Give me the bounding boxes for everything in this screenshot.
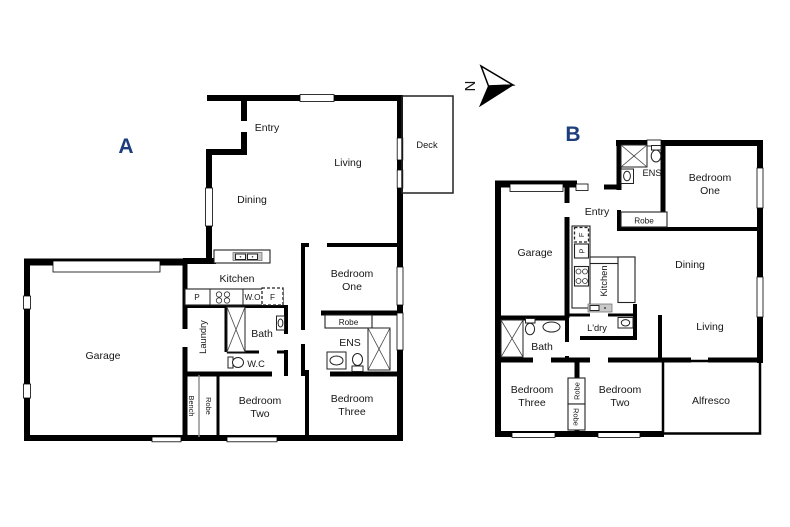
label-pantry-b: P: [577, 248, 586, 253]
room-label-laundry-a: Laundry: [198, 320, 208, 354]
north-label: N: [461, 81, 478, 92]
room-label-bath-a: Bath: [251, 328, 273, 340]
toilet-icon: [525, 319, 535, 335]
room-label-garage-b: Garage: [517, 247, 552, 259]
unit-b-label: B: [565, 123, 580, 146]
room-label-entry-a: Entry: [255, 122, 280, 134]
sink-icon: [588, 304, 612, 312]
room-label-bed3-b-line2: Three: [518, 397, 546, 409]
room-label-alfresco-b: Alfresco: [692, 395, 730, 407]
room-label-bed2-a-line2: Two: [250, 408, 269, 420]
laundry-trough-icon: [618, 318, 633, 329]
floorplan-page: A Entry Living Dining Deck Kitchen Garag…: [0, 0, 790, 527]
room-label-wc-a: W.C: [247, 359, 265, 369]
basin-icon: [621, 169, 634, 184]
room-label-bed3-b-line1: Bedroom: [511, 384, 554, 396]
label-pantry-a: P: [194, 293, 200, 302]
toilet-icon: [352, 354, 363, 372]
room-label-bed1-b-line2: One: [700, 185, 720, 197]
room-label-living-b: Living: [696, 321, 724, 333]
room-label-dining-a: Dining: [237, 194, 267, 206]
room-label-deck-a: Deck: [416, 140, 438, 150]
label-robe-bed1-a: Robe: [339, 318, 359, 327]
label-fridge-a: F: [270, 293, 275, 302]
room-label-bed2-a-line1: Bedroom: [239, 395, 282, 407]
room-label-garage-a: Garage: [85, 350, 120, 362]
shower-icon: [227, 307, 245, 352]
room-label-entry-b: Entry: [585, 206, 610, 218]
toilet-icon: [651, 146, 661, 163]
room-label-living-a: Living: [334, 157, 362, 169]
bench-return: [618, 257, 635, 303]
unit-a-label: A: [118, 135, 133, 158]
north-compass: N: [461, 66, 513, 106]
floor-plan: A Entry Living Dining Deck Kitchen Garag…: [0, 0, 790, 527]
label-robe-bottom-b: Robe: [572, 408, 581, 426]
room-label-bed2-b-line1: Bedroom: [599, 384, 642, 396]
basin-icon: [327, 352, 346, 369]
room-label-kitchen-a: Kitchen: [219, 273, 254, 285]
label-robe-bed1-b: Robe: [634, 217, 654, 226]
vanity-icon: [277, 316, 285, 330]
shower-icon: [368, 328, 390, 370]
room-label-ens-b: ENS: [642, 168, 661, 178]
shower-icon: [621, 145, 647, 167]
cooktop-icon: [575, 267, 589, 287]
garage-door-a: [53, 261, 160, 272]
room-label-bed3-a-line2: Three: [338, 406, 366, 418]
room-label-ens-a: ENS: [339, 337, 361, 349]
room-label-bed1-b-line1: Bedroom: [689, 172, 732, 184]
shower-icon: [501, 320, 523, 357]
room-label-bed3-a-line1: Bedroom: [331, 393, 374, 405]
label-fridge-b: F: [577, 232, 586, 237]
room-label-ldry-b: L'dry: [587, 323, 607, 333]
room-label-dining-b: Dining: [675, 259, 705, 271]
label-robe-top-b: Robe: [573, 382, 582, 400]
room-label-kitchen-b: Kitchen: [599, 265, 609, 296]
north-arrow-lower: [480, 85, 513, 106]
north-arrow-upper: [481, 66, 513, 86]
label-wall-oven-a: W.O: [245, 293, 261, 302]
garage-door-b: [510, 184, 563, 192]
basin-icon: [543, 322, 560, 332]
toilet-icon: [228, 357, 244, 368]
room-label-bed1-a-line2: One: [342, 281, 362, 293]
closet-label-robe-a: Robe: [204, 397, 213, 415]
room-label-bed1-a-line1: Bedroom: [331, 268, 374, 280]
closet-label-bench-a: Bench: [187, 396, 196, 417]
room-label-bed2-b-line2: Two: [610, 397, 629, 409]
kitchen-island-sink-icon: [214, 250, 270, 263]
entry-pier: [576, 184, 588, 191]
room-label-bath-b: Bath: [531, 341, 553, 353]
